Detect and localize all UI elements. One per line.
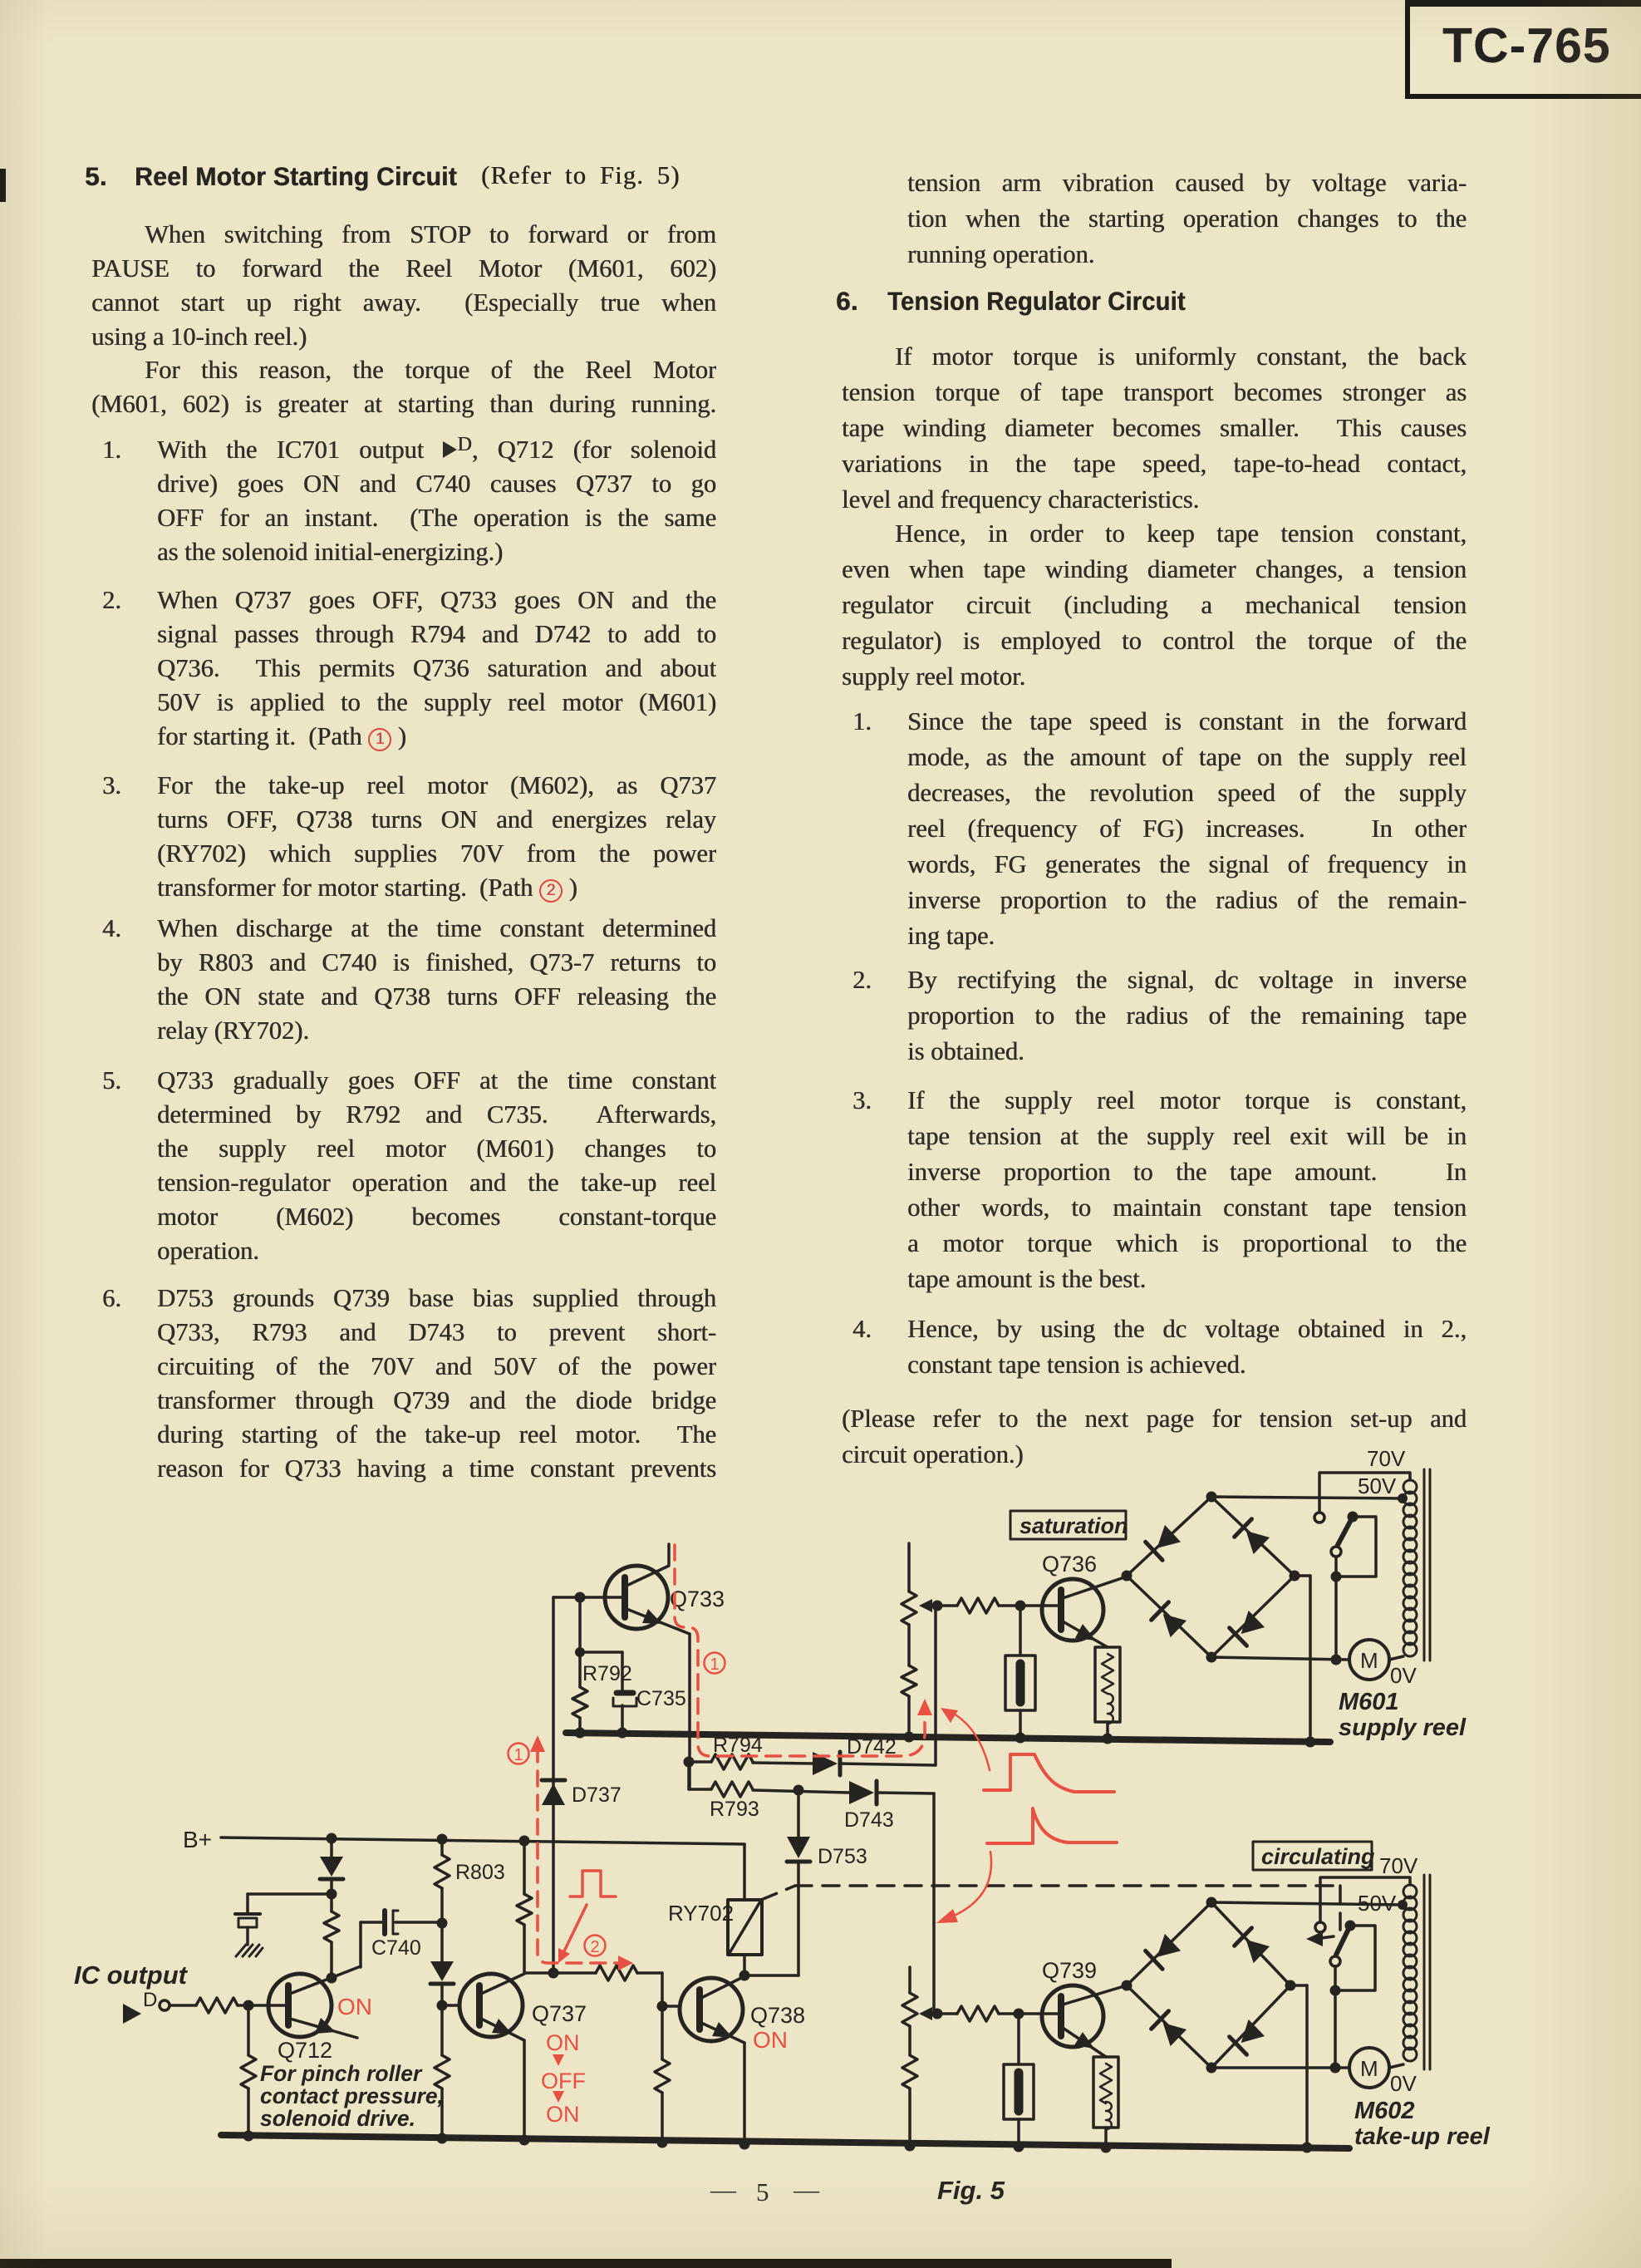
svg-text:Q738: Q738 [750,2003,805,2028]
svg-text:contact pressure,: contact pressure, [260,2084,444,2108]
svg-text:ON: ON [753,2027,788,2053]
svg-text:ON: ON [546,2102,580,2127]
svg-text:OFF: OFF [541,2069,586,2093]
svg-text:5: 5 [756,2177,769,2207]
svg-text:D: D [143,1989,157,2011]
svg-text:Q736: Q736 [1042,1552,1097,1577]
svg-text:70V: 70V [1367,1446,1406,1471]
svg-text:Q737: Q737 [532,2001,587,2026]
svg-text:supply reel: supply reel [1339,1715,1467,1741]
svg-text:1: 1 [710,1655,719,1674]
svg-text:D743: D743 [844,1808,894,1832]
svg-text:M602: M602 [1354,2098,1415,2124]
svg-text:solenoid drive.: solenoid drive. [260,2106,415,2131]
svg-text:C735: C735 [636,1687,686,1710]
svg-text:saturation: saturation [1019,1513,1128,1538]
svg-text:—: — [793,2175,820,2204]
svg-text:ON: ON [337,1994,372,2020]
svg-text:50V: 50V [1358,1473,1397,1498]
svg-text:take-up reel: take-up reel [1354,2123,1491,2150]
svg-text:Q733: Q733 [670,1587,725,1611]
svg-text:ON: ON [546,2030,580,2055]
svg-text:M: M [1360,2056,1378,2081]
svg-text:0V: 0V [1390,2071,1417,2096]
svg-text:2: 2 [590,1938,599,1956]
svg-text:B+: B+ [183,1827,212,1852]
svg-text:circulating: circulating [1261,1844,1375,1869]
svg-text:IC output: IC output [74,1961,189,1990]
svg-text:M: M [1360,1648,1378,1673]
svg-text:R794: R794 [713,1734,763,1757]
svg-text:1: 1 [513,1746,523,1764]
svg-text:RY702: RY702 [668,1901,734,1926]
svg-text:Q712: Q712 [278,2038,332,2063]
svg-text:Fig. 5: Fig. 5 [937,2176,1005,2205]
svg-text:70V: 70V [1379,1853,1418,1878]
svg-text:0V: 0V [1390,1663,1417,1688]
svg-text:D753: D753 [818,1845,867,1868]
svg-text:C740: C740 [371,1936,421,1960]
svg-text:R793: R793 [710,1798,759,1821]
svg-text:R803: R803 [455,1861,505,1884]
svg-text:Q739: Q739 [1042,1958,1097,1983]
svg-text:—: — [710,2175,737,2204]
svg-text:For pinch roller: For pinch roller [260,2061,423,2086]
svg-text:D737: D737 [572,1783,622,1807]
svg-text:M601: M601 [1339,1689,1399,1715]
svg-text:R792: R792 [582,1662,632,1685]
